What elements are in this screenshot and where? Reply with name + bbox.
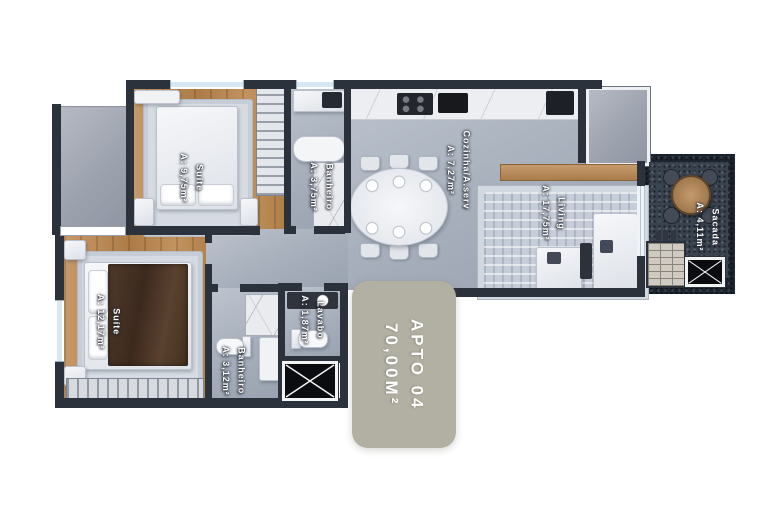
banheiro1-sink-icon	[322, 92, 342, 108]
suite1-nightstand-right	[240, 198, 258, 226]
balcony-sliding-door	[637, 186, 645, 256]
neighbor-window-sill	[60, 226, 126, 236]
sacada-area: A: 4,11m²	[692, 202, 707, 251]
banheiro2-label: Banheiro A: 3,12m²	[218, 346, 249, 396]
suite1-wardrobe	[256, 88, 286, 196]
neighbor-unit-right	[586, 87, 650, 166]
window-banheiro1	[296, 80, 334, 89]
wall-kitchen-right	[578, 85, 586, 163]
cozinha-name: Cozinha/A.serv	[458, 130, 473, 209]
dining-chair	[418, 156, 438, 171]
window-suite1	[170, 80, 244, 89]
wall-lavabo-right	[340, 283, 348, 408]
lavabo-name: Lavabo	[312, 295, 327, 345]
wall-lavabo-top	[324, 283, 345, 291]
apartment-total-area: 70,00M²	[379, 319, 405, 411]
living-sofa-cushion	[547, 252, 561, 264]
suite2-label: Suíte A: 12,17m²	[93, 294, 124, 350]
neighbor-unit-left	[58, 106, 128, 230]
wall-living-balcony	[637, 256, 645, 293]
suite1-nightstand-left	[134, 198, 154, 226]
suite1-shelf	[134, 90, 180, 104]
lavabo-label: Lavabo A: 1,87m²	[297, 295, 328, 345]
service-shaft-symbol	[684, 256, 726, 288]
dining-chair	[360, 243, 380, 258]
wall-lavabo-top	[278, 283, 302, 291]
suite1-label: Suíte A: 9,75m²	[176, 153, 207, 203]
suite2-nightstand-top	[64, 240, 86, 260]
banheiro1-name: Banheiro	[321, 162, 336, 212]
living-buffet	[500, 164, 638, 181]
living-name: Living	[553, 185, 568, 241]
kitchen-sink-icon	[438, 93, 468, 113]
wall-suite2-right	[205, 233, 212, 243]
banheiro2-area: A: 3,12m²	[218, 346, 233, 396]
wall-suite1-banheiro1	[284, 86, 291, 233]
banheiro2-shower	[245, 294, 279, 336]
dining-chair	[360, 156, 380, 171]
bottle-icon	[663, 230, 668, 241]
living-armchair-cushion	[600, 240, 613, 253]
wall-banheiro1-kitchen	[344, 86, 351, 233]
cozinha-label: Cozinha/A.serv A: 7,27m²	[443, 130, 474, 209]
living-label: Living A: 17,75m²	[538, 185, 569, 241]
wall-banheiro2-top	[205, 284, 218, 292]
cooktop-icon	[397, 93, 433, 115]
suite1-name: Suíte	[191, 153, 206, 203]
banheiro2-vanity	[259, 337, 280, 381]
living-side-table	[580, 243, 592, 279]
dining-table	[350, 168, 448, 246]
service-shaft-symbol	[281, 360, 339, 402]
suite1-area: A: 9,75m²	[176, 153, 191, 203]
banheiro1-bathtub	[293, 136, 345, 162]
floor-plan-canvas: Suíte A: 9,75m² Banheiro A: 3,75m² Cozin…	[0, 0, 768, 521]
sacada-label: Sacada A: 4,11m²	[692, 202, 723, 251]
sacada-name: Sacada	[707, 202, 722, 251]
dining-chair	[418, 243, 438, 258]
wall-suite-divider	[126, 226, 260, 235]
apartment-badge: APTO 04 70,00M²	[352, 281, 456, 448]
banheiro2-name: Banheiro	[233, 346, 248, 396]
dining-chair	[389, 245, 409, 260]
hall-floor	[206, 229, 348, 290]
wall-suite1-left	[126, 86, 134, 232]
wall-banheiro1-bottom	[314, 226, 345, 234]
banheiro1-area: A: 3,75m²	[306, 162, 321, 212]
banheiro1-label: Banheiro A: 3,75m²	[306, 162, 337, 212]
wall-living-balcony	[637, 161, 645, 186]
cozinha-area: A: 7,27m²	[443, 130, 458, 209]
lavabo-area: A: 1,87m²	[297, 295, 312, 345]
window-suite2	[55, 300, 64, 362]
apartment-number: APTO 04	[404, 319, 430, 411]
bottle-icon	[656, 231, 661, 241]
kitchen-appliance-icon	[546, 91, 574, 115]
suite2-name: Suíte	[108, 294, 123, 350]
dining-chair	[389, 154, 409, 169]
suite2-area: A: 12,17m²	[93, 294, 108, 350]
wall-left-upper	[52, 104, 61, 235]
apartment-badge-text: APTO 04 70,00M²	[379, 319, 430, 411]
bottle-icon	[671, 231, 676, 241]
living-area: A: 17,75m²	[538, 185, 553, 241]
wall-living-bottom	[448, 288, 645, 297]
wall-banheiro1-bottom	[284, 226, 296, 234]
wall-banheiro2-top	[240, 284, 278, 292]
barbecue-grill	[646, 241, 686, 288]
